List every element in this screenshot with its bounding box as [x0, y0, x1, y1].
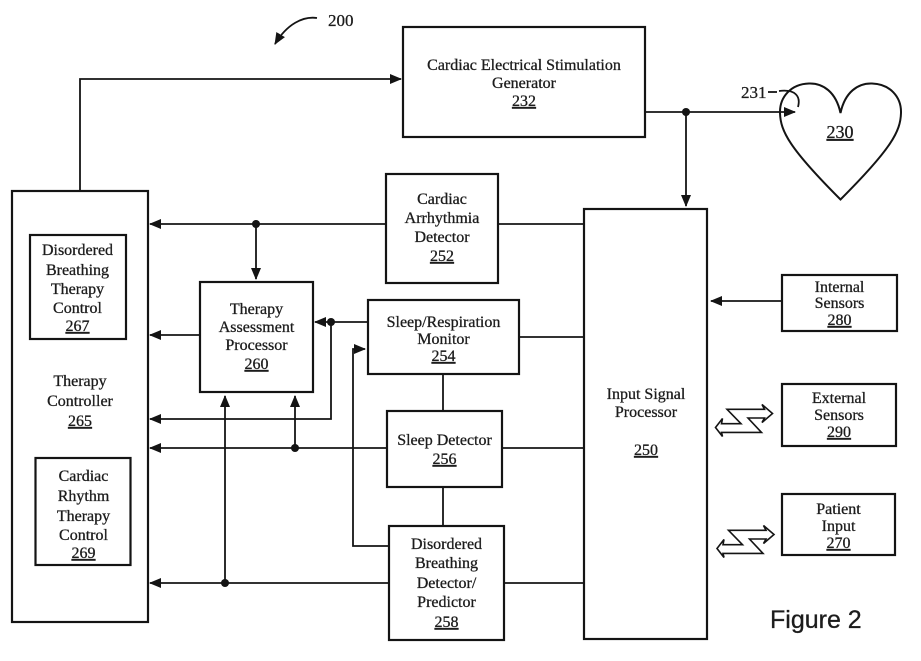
svg-text:Internal: Internal — [815, 279, 865, 296]
svg-text:Therapy: Therapy — [53, 373, 106, 390]
svg-text:Cardiac Electrical Stimulation: Cardiac Electrical Stimulation — [427, 57, 621, 74]
svg-text:232: 232 — [512, 93, 536, 110]
svg-text:Patient: Patient — [816, 501, 861, 518]
svg-text:252: 252 — [430, 248, 454, 265]
svg-text:External: External — [812, 390, 867, 407]
svg-text:265: 265 — [68, 413, 92, 430]
svg-text:250: 250 — [634, 442, 658, 459]
svg-text:256: 256 — [433, 451, 457, 468]
svg-text:200: 200 — [328, 11, 354, 30]
svg-text:Sleep Detector: Sleep Detector — [397, 432, 492, 449]
svg-text:270: 270 — [827, 535, 851, 552]
svg-text:231: 231 — [741, 83, 767, 102]
svg-text:Generator: Generator — [492, 75, 557, 92]
svg-text:254: 254 — [432, 348, 456, 365]
svg-text:Disordered: Disordered — [411, 536, 482, 553]
svg-text:Therapy: Therapy — [57, 508, 110, 525]
svg-text:Controller: Controller — [47, 393, 113, 410]
svg-text:230: 230 — [827, 122, 854, 142]
svg-text:290: 290 — [827, 424, 851, 441]
svg-text:Disordered: Disordered — [42, 242, 113, 259]
svg-text:Rhythm: Rhythm — [58, 488, 110, 505]
svg-text:Input: Input — [822, 518, 856, 535]
svg-text:Figure 2: Figure 2 — [770, 606, 862, 634]
svg-text:Detector/: Detector/ — [417, 575, 477, 592]
svg-text:269: 269 — [72, 545, 96, 562]
svg-text:Therapy: Therapy — [230, 301, 283, 318]
svg-text:Input Signal: Input Signal — [607, 386, 686, 403]
svg-text:Sensors: Sensors — [814, 407, 864, 424]
svg-text:Cardiac: Cardiac — [417, 191, 467, 208]
svg-text:Detector: Detector — [414, 229, 470, 246]
svg-text:Processor: Processor — [225, 337, 288, 354]
svg-text:Cardiac: Cardiac — [59, 468, 109, 485]
svg-text:260: 260 — [245, 356, 269, 373]
svg-text:280: 280 — [828, 312, 852, 329]
svg-text:Control: Control — [53, 300, 102, 317]
svg-text:258: 258 — [435, 614, 459, 631]
svg-text:267: 267 — [66, 318, 90, 335]
svg-text:Predictor: Predictor — [417, 594, 476, 611]
svg-text:Processor: Processor — [615, 404, 678, 421]
svg-text:Control: Control — [59, 527, 108, 544]
svg-text:Breathing: Breathing — [415, 555, 478, 572]
svg-text:Sensors: Sensors — [815, 295, 865, 312]
svg-text:Breathing: Breathing — [46, 262, 109, 279]
svg-text:Arrhythmia: Arrhythmia — [405, 210, 480, 227]
svg-text:Assessment: Assessment — [219, 319, 295, 336]
svg-text:Therapy: Therapy — [51, 281, 104, 298]
svg-text:Monitor: Monitor — [417, 331, 470, 348]
svg-text:Sleep/Respiration: Sleep/Respiration — [387, 314, 501, 331]
